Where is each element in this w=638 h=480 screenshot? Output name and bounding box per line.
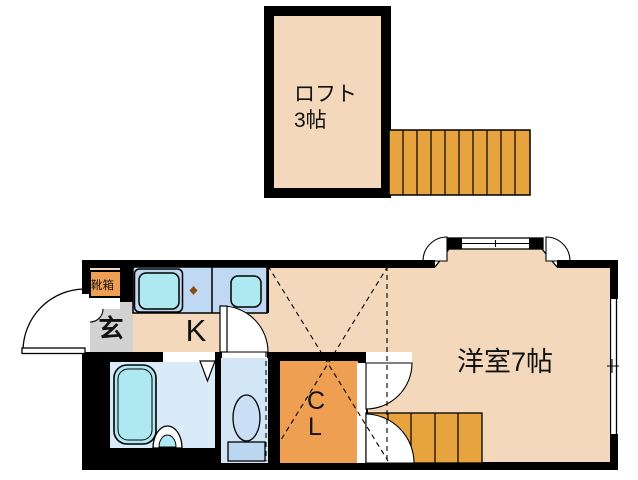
bathtub: [114, 365, 156, 444]
toilet-door-leaf: [220, 306, 227, 352]
main-floor-section: 靴箱: [22, 237, 619, 470]
entry-door-leaf: [22, 348, 85, 354]
closet-door-recess: [366, 352, 412, 363]
shoebox-label: 靴箱: [91, 278, 114, 292]
closet-label-l: L: [308, 413, 322, 441]
bay-window: [423, 237, 570, 268]
floorplan: ロフト 3帖: [0, 0, 638, 480]
loft-label: ロフト: [294, 83, 357, 106]
loft-section: ロフト 3帖: [264, 6, 530, 198]
loft-size-label: 3帖: [294, 109, 327, 132]
bay-window-floor: [435, 249, 557, 268]
toilet-bowl: [233, 395, 260, 441]
floorplan-drawing: ロフト 3帖: [0, 0, 638, 480]
bay-window-cap-right: [529, 238, 543, 249]
toilet-tank: [228, 442, 265, 461]
kitchen-sink: [139, 273, 179, 309]
bathtub-outer: [114, 365, 156, 444]
genkan-label: 玄: [98, 314, 123, 343]
wall-right-upper: [610, 260, 618, 299]
kitchen-label: K: [186, 313, 207, 348]
closet-label-c: C: [307, 387, 325, 415]
entry-door-swing-arc: [23, 289, 85, 351]
western-room-label: 洋室7帖: [457, 347, 553, 377]
bay-window-side-pane-right: [546, 237, 570, 261]
kitchen-fixture: [231, 276, 261, 307]
entry-door: [22, 289, 85, 354]
wall-top-right: [557, 260, 618, 268]
bay-window-side-pane-left: [423, 237, 447, 261]
kitchen-counter: [133, 267, 267, 313]
bay-window-cap-left: [448, 238, 462, 249]
